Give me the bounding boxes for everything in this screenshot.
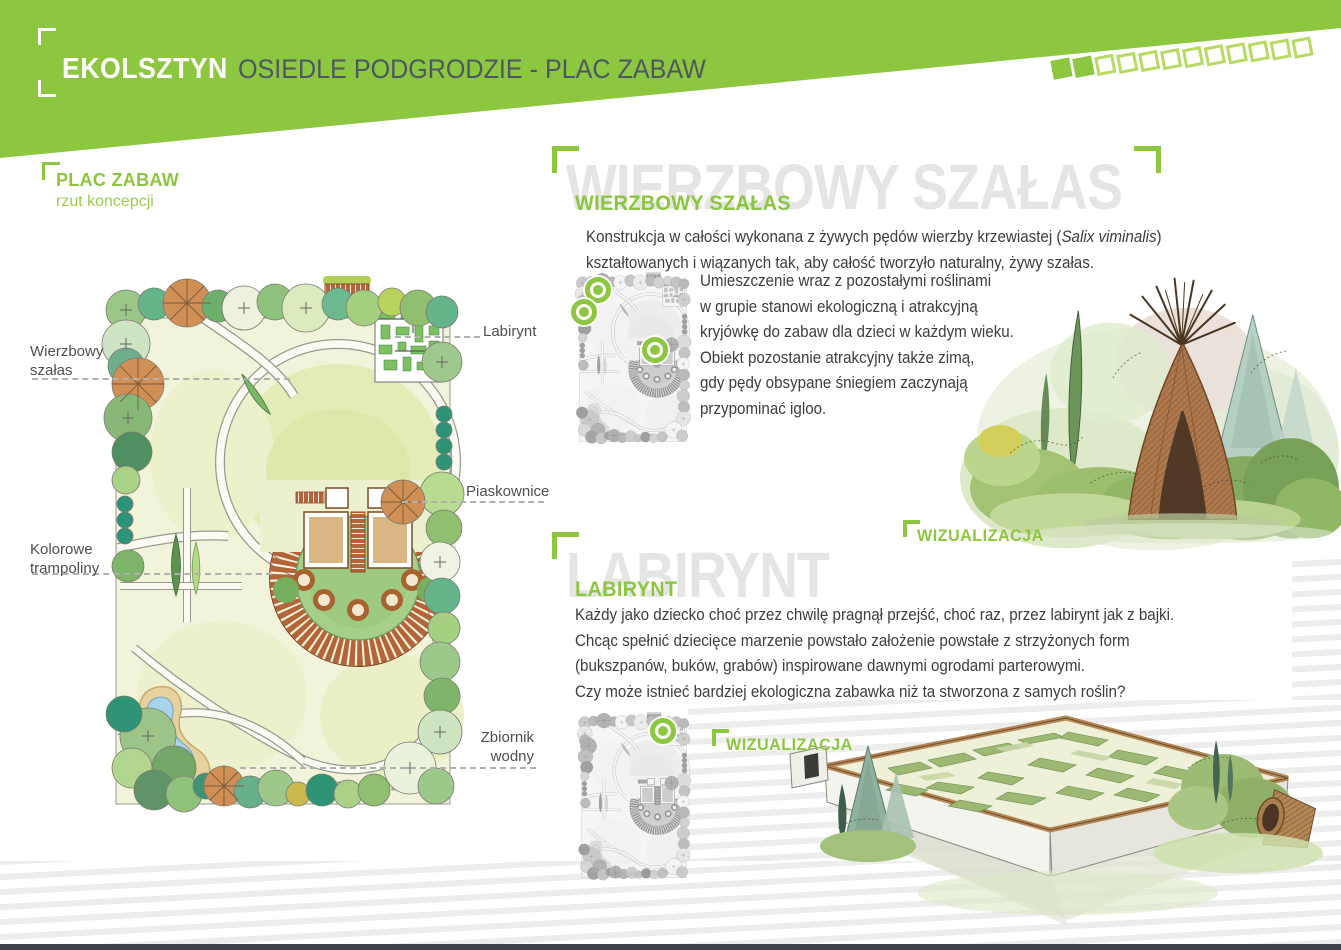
plan-label-zbiornik: Zbiornik wodny (448, 729, 534, 767)
szalas-body-line: gdy pędy obsypane śniegiem zaczynają (700, 371, 1014, 397)
labirynt-location-thumbnail (574, 709, 694, 889)
progress-square (1050, 58, 1072, 80)
plan-label-piaskownice: Piaskownice (466, 483, 549, 502)
progress-square (1204, 44, 1226, 66)
szalas-intro-close: ) (1157, 228, 1162, 246)
footer-bar (0, 944, 1341, 950)
szalas-body-line: przypominać igloo. (700, 397, 1014, 423)
progress-square (1269, 38, 1291, 60)
progress-square (1291, 36, 1313, 58)
corner-bracket-icon (1134, 146, 1161, 173)
heading-szalas: WIERZBOWY SZAŁAS (575, 192, 791, 216)
plan-title: PLAC ZABAW (56, 170, 179, 191)
site-plan-illustration (92, 266, 474, 840)
progress-square (1138, 50, 1160, 72)
leader-line (240, 767, 536, 769)
viz-label-labirynt: WIZUALIZACJA (726, 735, 853, 755)
szalas-intro-text: Konstrukcja w całości wykonana z żywych … (586, 228, 1061, 246)
progress-square (1072, 56, 1094, 78)
progress-square (1116, 52, 1138, 74)
labirynt-body-line: Chcąc spełnić dziecięce marzenie powstał… (575, 629, 1174, 655)
plan-label-wierzbowy: Wierzbowy szałas (30, 343, 112, 381)
szalas-body: Umieszczenie wraz z pozostałymi roślinam… (700, 269, 1014, 422)
szalas-body-line: w grupie stanowi ekologiczną i atrakcyjn… (700, 295, 1014, 321)
map-marker (650, 718, 676, 744)
szalas-body-line: kryjówkę do zabaw dla dzieci w każdym wi… (700, 320, 1014, 346)
labirynt-body-line: (bukszpanów, buków, grabów) inspirowane … (575, 654, 1174, 680)
page-title: OSIEDLE PODGRODZIE - PLAC ZABAW (238, 54, 706, 85)
progress-square (1226, 42, 1248, 64)
labyrinth-illustration (768, 688, 1341, 946)
labirynt-body: Każdy jako dziecko choć przez chwilę pra… (575, 603, 1174, 705)
corner-bracket-icon (552, 532, 579, 559)
crop-mark-top (38, 28, 56, 45)
szalas-body-line: Umieszczenie wraz z pozostałymi roślinam… (700, 269, 1014, 295)
viz-label-szalas: WIZUALIZACJA (917, 526, 1044, 546)
heading-labirynt: LABIRYNT (575, 578, 677, 602)
plan-label-trampoliny: Kolorowe trampoliny (30, 541, 122, 579)
progress-square (1160, 48, 1182, 70)
labirynt-body-line: Czy może istnieć bardziej ekologiczna za… (575, 680, 1174, 706)
progress-square (1182, 46, 1204, 68)
corner-bracket-icon (552, 146, 579, 173)
progress-square (1094, 54, 1116, 76)
labirynt-body-line: Każdy jako dziecko choć przez chwilę pra… (575, 603, 1174, 629)
szalas-latin-name: Salix viminalis (1061, 228, 1156, 246)
map-marker (571, 299, 597, 325)
leader-line (395, 336, 480, 338)
szalas-body-line: Obiekt pozostanie atrakcyjny także zimą, (700, 346, 1014, 372)
plan-label-labirynt: Labirynt (483, 323, 536, 342)
map-marker (642, 337, 668, 363)
brand-logo: EKOLSZTYN (62, 53, 228, 86)
plan-subtitle: rzut koncepcji (56, 193, 154, 211)
slide-page: EKOLSZTYN OSIEDLE PODGRODZIE - PLAC ZABA… (0, 0, 1341, 950)
progress-square (1248, 40, 1270, 62)
stripe-band-edge (1292, 556, 1341, 700)
crop-mark-bottom (38, 80, 56, 97)
